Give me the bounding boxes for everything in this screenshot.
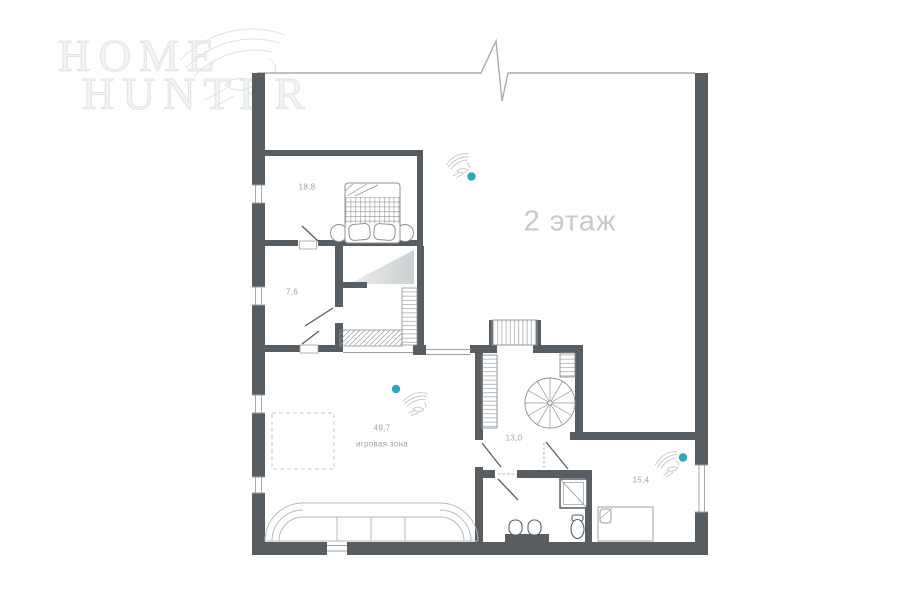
bed-bedroom bbox=[331, 183, 414, 243]
spiral-staircase bbox=[525, 378, 575, 428]
room-area-dressing: 7,6 bbox=[286, 288, 298, 297]
pillow bbox=[373, 223, 395, 240]
window-left-2 bbox=[251, 287, 267, 305]
double-sink bbox=[505, 520, 549, 542]
bed-bedroom2 bbox=[598, 507, 653, 541]
room-area-hall: 13,0 bbox=[506, 434, 523, 443]
door-swing-dashes bbox=[498, 443, 544, 474]
room-area-bedroom: 18,8 bbox=[299, 183, 316, 192]
floorplan-svg bbox=[0, 0, 915, 610]
photo-marker-dot[interactable] bbox=[392, 385, 400, 393]
room-name-playroom: игровая зона bbox=[356, 440, 408, 449]
toilet bbox=[571, 515, 584, 539]
eagle-watermarks bbox=[392, 154, 687, 479]
sofa bbox=[265, 503, 478, 541]
room-area-bedroom2: 15,4 bbox=[633, 476, 650, 485]
window-left-4 bbox=[251, 477, 267, 493]
shower bbox=[560, 479, 587, 508]
door-bathroom bbox=[498, 479, 518, 500]
photo-marker-dot[interactable] bbox=[679, 453, 687, 461]
door-bottom-wall bbox=[327, 542, 347, 555]
play-zone-outline bbox=[272, 413, 334, 469]
pillow bbox=[600, 509, 611, 523]
door-bedroom2 bbox=[546, 442, 568, 469]
watermark-triangle bbox=[349, 250, 414, 284]
stair-flight-right bbox=[560, 353, 575, 377]
window-right-1 bbox=[694, 465, 710, 512]
pillow bbox=[348, 223, 370, 241]
cased-openings bbox=[343, 350, 471, 355]
window-left-1 bbox=[251, 185, 267, 203]
interior-walls bbox=[252, 150, 695, 542]
floor-title: 2 этаж bbox=[524, 206, 617, 239]
open-boundary-break-line bbox=[257, 41, 695, 101]
logo-eagle-icon bbox=[180, 29, 285, 108]
stair-flight-top bbox=[492, 320, 537, 345]
door-playroom-hall bbox=[482, 443, 501, 467]
door-dressing-side bbox=[305, 308, 333, 326]
wardrobe bbox=[340, 288, 417, 346]
door-dressing-bottom bbox=[302, 331, 319, 344]
bathroom-fixtures bbox=[505, 479, 587, 542]
floorplan-canvas: HOME HUNTER bbox=[0, 0, 915, 610]
eagle-watermark-icon bbox=[654, 451, 680, 478]
staircase bbox=[482, 320, 575, 428]
door-bedroom bbox=[302, 226, 318, 241]
window-left-3 bbox=[251, 395, 267, 413]
photo-marker-dot[interactable] bbox=[467, 172, 475, 180]
door-thresholds bbox=[300, 241, 319, 353]
eagle-watermark-icon bbox=[401, 390, 428, 417]
eagle-watermark-icon bbox=[446, 154, 469, 178]
stair-flight-left bbox=[482, 355, 497, 428]
room-area-playroom: 49,7 bbox=[374, 424, 391, 433]
